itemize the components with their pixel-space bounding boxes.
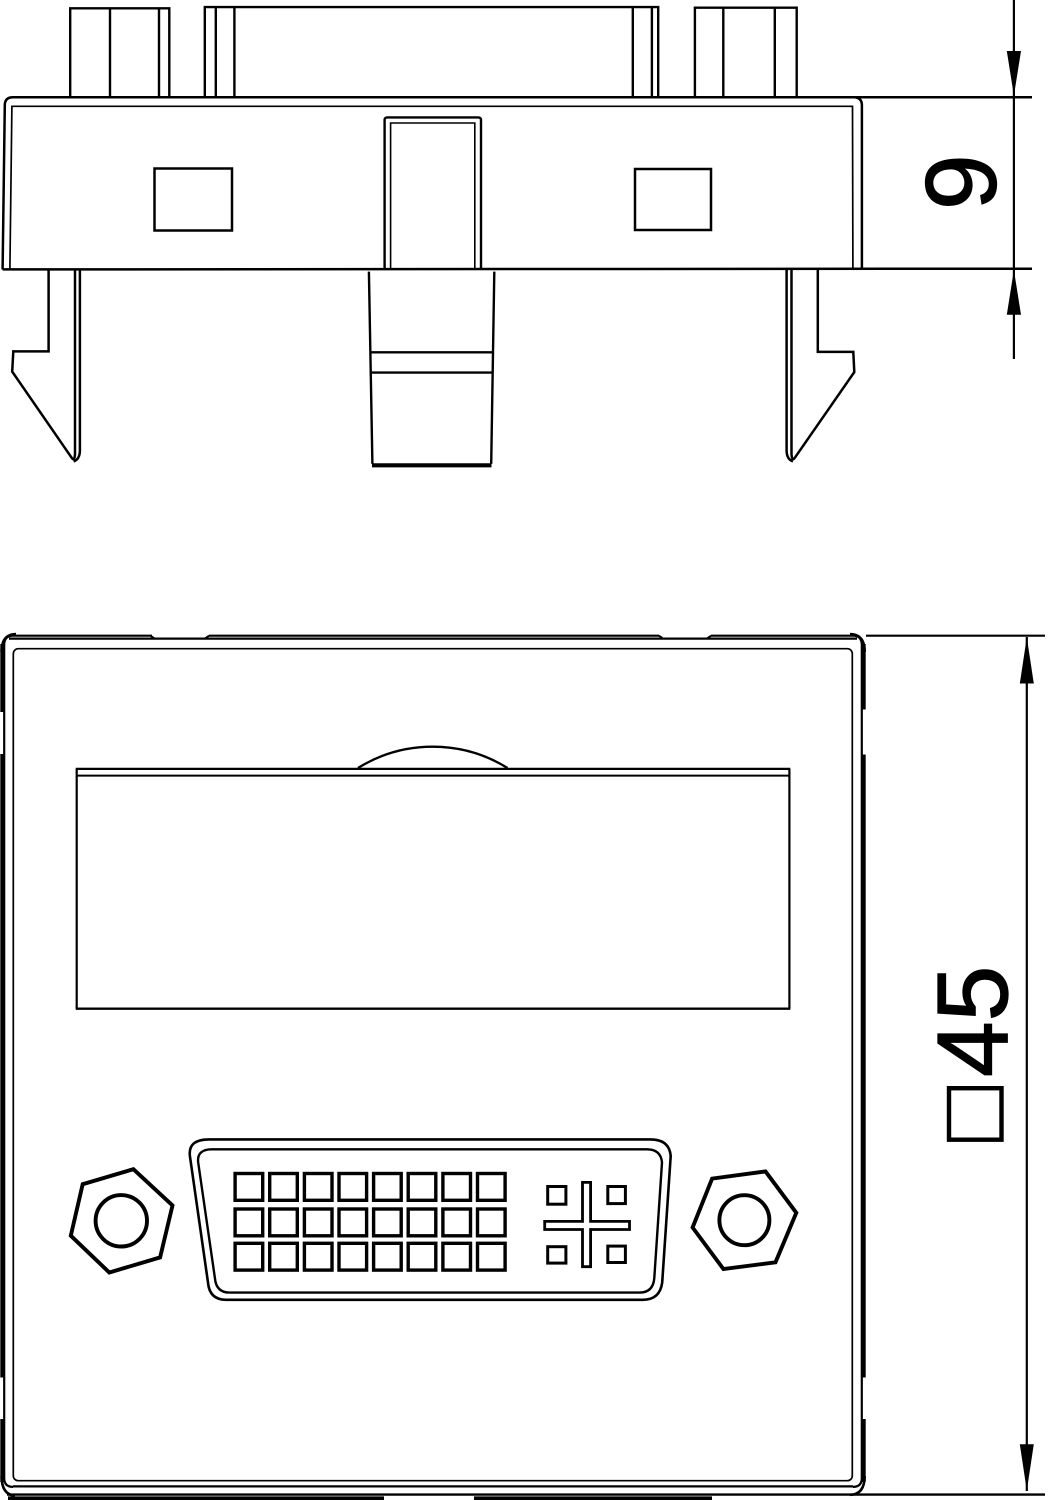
svg-text:45: 45 bbox=[917, 966, 1029, 1077]
svg-text:9: 9 bbox=[905, 154, 1017, 210]
